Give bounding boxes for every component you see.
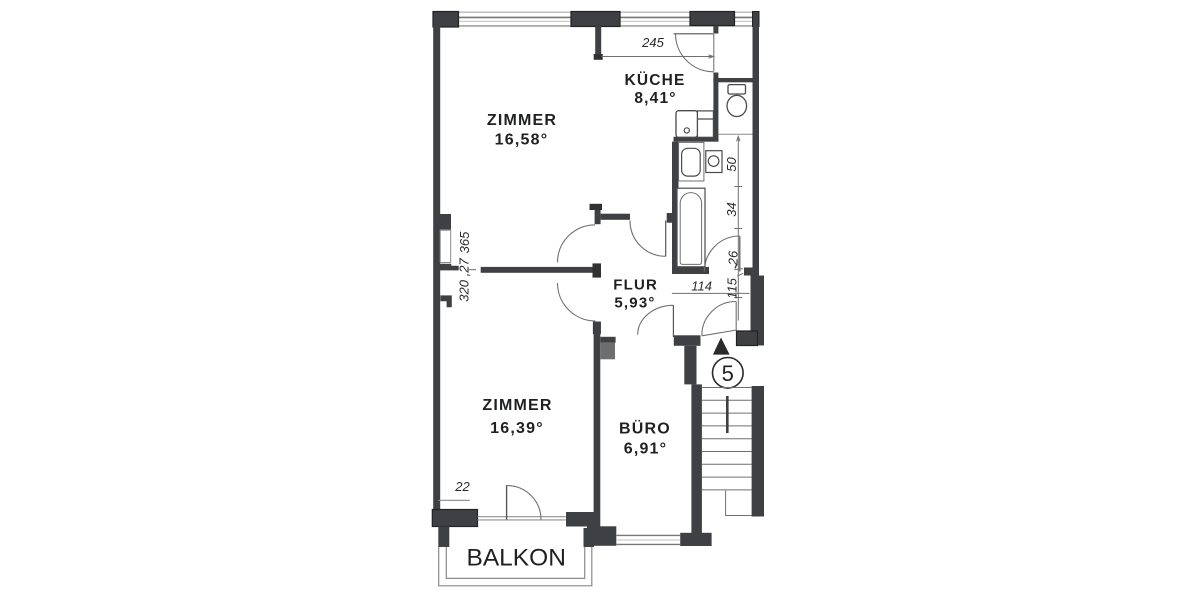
svg-text:FLUR: FLUR xyxy=(613,277,658,294)
svg-text:365: 365 xyxy=(457,231,472,253)
svg-text:16,39°: 16,39° xyxy=(490,420,544,437)
svg-text:115: 115 xyxy=(724,277,739,298)
svg-text:5,93°: 5,93° xyxy=(614,295,655,312)
svg-text:245: 245 xyxy=(641,35,664,50)
svg-text:22: 22 xyxy=(454,479,470,494)
svg-text:BALKON: BALKON xyxy=(466,545,565,572)
svg-text:26: 26 xyxy=(725,250,740,266)
svg-text:ZIMMER: ZIMMER xyxy=(487,112,557,129)
svg-text:BÜRO: BÜRO xyxy=(619,419,671,438)
svg-text:ZIMMER: ZIMMER xyxy=(482,397,552,414)
svg-text:5: 5 xyxy=(722,361,734,386)
svg-text:50: 50 xyxy=(724,157,739,172)
svg-text:6,91°: 6,91° xyxy=(624,441,668,458)
svg-text:320 ,27: 320 ,27 xyxy=(456,258,471,302)
svg-text:34: 34 xyxy=(724,202,739,216)
svg-text:114: 114 xyxy=(691,279,712,294)
svg-text:8,41°: 8,41° xyxy=(634,90,676,107)
svg-text:16,58°: 16,58° xyxy=(495,132,549,149)
svg-text:KÜCHE: KÜCHE xyxy=(624,72,685,89)
